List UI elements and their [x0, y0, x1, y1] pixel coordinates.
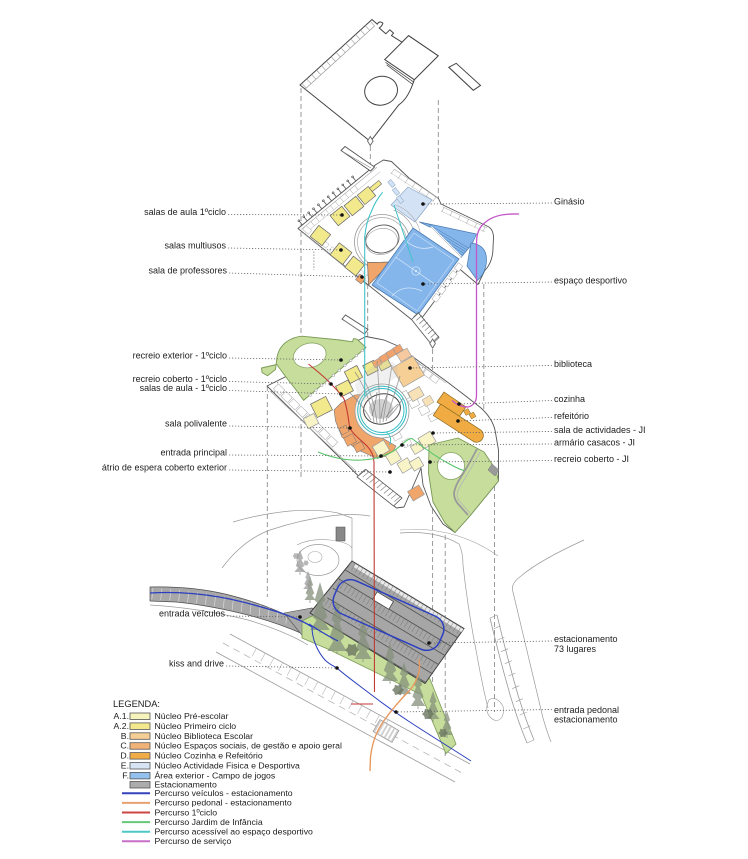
svg-text:F.: F.: [122, 770, 129, 780]
svg-text:sala polivalente: sala polivalente: [165, 419, 227, 429]
svg-text:salas de aula - 1ºciclo: salas de aula - 1ºciclo: [140, 383, 227, 393]
svg-text:Núcleo Espaços sociais, de ges: Núcleo Espaços sociais, de gestão e apoi…: [155, 741, 342, 751]
svg-text:entrada veículos: entrada veículos: [159, 609, 226, 619]
svg-text:estacionamento: estacionamento: [554, 715, 618, 725]
svg-text:entrada principal: entrada principal: [160, 448, 227, 458]
svg-text:A.1.: A.1.: [114, 711, 129, 721]
svg-text:Núcleo Actividade Fisica e Des: Núcleo Actividade Fisica e Desportiva: [155, 761, 301, 771]
svg-text:Percurso acessível ao espaço d: Percurso acessível ao espaço desportivo: [155, 827, 314, 837]
svg-text:sala de professores: sala de professores: [148, 266, 227, 276]
svg-text:Núcleo Pré-escolar: Núcleo Pré-escolar: [155, 711, 229, 721]
svg-text:recreio coberto - JI: recreio coberto - JI: [554, 454, 629, 464]
svg-text:refeitório: refeitório: [554, 411, 589, 421]
svg-text:E.: E.: [121, 761, 129, 771]
svg-text:B.: B.: [121, 731, 129, 741]
svg-text:Percurso 1ºciclo: Percurso 1ºciclo: [155, 807, 218, 817]
svg-text:73 lugares: 73 lugares: [554, 644, 597, 654]
svg-text:A.2.: A.2.: [114, 721, 129, 731]
svg-text:espaço desportivo: espaço desportivo: [554, 276, 627, 286]
svg-text:D.: D.: [120, 751, 129, 761]
svg-text:sala de actividades - JI: sala de actividades - JI: [554, 425, 646, 435]
svg-text:kiss and drive: kiss and drive: [169, 659, 224, 669]
svg-text:átrio de espera coberto exteri: átrio de espera coberto exterior: [102, 463, 227, 473]
svg-text:recreio exterior - 1ºciclo: recreio exterior - 1ºciclo: [133, 351, 227, 361]
svg-text:cozinha: cozinha: [554, 394, 585, 404]
svg-text:estacionamento: estacionamento: [554, 634, 618, 644]
svg-text:Ginásio: Ginásio: [554, 197, 585, 207]
svg-text:C.: C.: [120, 741, 129, 751]
svg-text:salas de aula 1ºciclo: salas de aula 1ºciclo: [144, 207, 226, 217]
svg-text:Percurso veículos - estacionam: Percurso veículos - estacionamento: [155, 788, 293, 798]
svg-text:Núcleo Biblioteca Escolar: Núcleo Biblioteca Escolar: [155, 731, 254, 741]
svg-text:LEGENDA:: LEGENDA:: [113, 699, 160, 709]
svg-text:Núcleo Primeiro ciclo: Núcleo Primeiro ciclo: [155, 721, 237, 731]
svg-text:Percurso pedonal - estacioname: Percurso pedonal - estacionamento: [155, 798, 292, 808]
svg-text:Percurso de serviço: Percurso de serviço: [155, 836, 232, 846]
svg-text:biblioteca: biblioteca: [554, 359, 592, 369]
svg-text:Núcleo Cozinha e Refeitório: Núcleo Cozinha e Refeitório: [155, 751, 263, 761]
svg-text:entrada pedonal: entrada pedonal: [554, 705, 619, 715]
svg-text:Percurso Jardim de Infância: Percurso Jardim de Infância: [155, 817, 263, 827]
svg-text:salas multiusos: salas multiusos: [164, 241, 226, 251]
svg-text:armário casacos - JI: armário casacos - JI: [554, 438, 635, 448]
